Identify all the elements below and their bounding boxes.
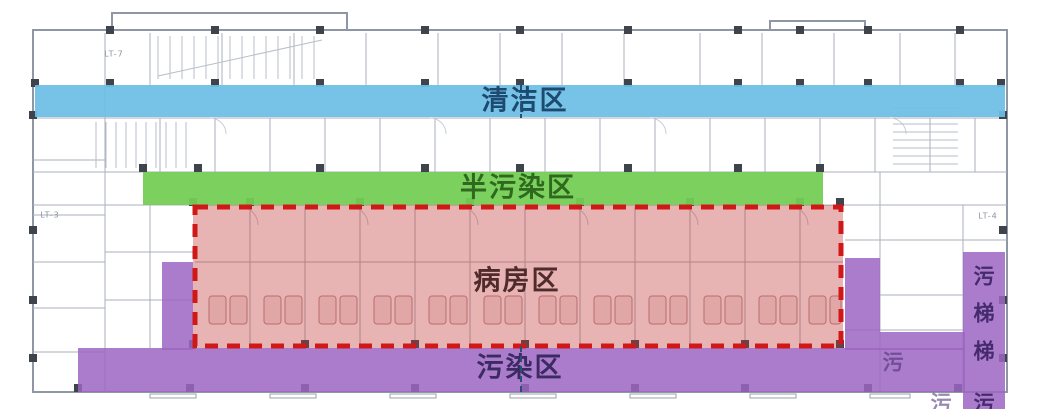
dirty-elevator-char-partial: 污 bbox=[883, 353, 904, 374]
dirty-elevator-char-partial: 污 bbox=[931, 394, 952, 409]
floor-plan-canvas: 清洁区 半污染区 病房区 污染区 污梯梯污污污 LT-7 LT-3 LT-4 bbox=[0, 0, 1044, 409]
polluted-zone-right-arm bbox=[845, 258, 880, 350]
clean-zone-label: 清洁区 bbox=[482, 88, 569, 115]
ward-zone-label: 病房区 bbox=[474, 268, 561, 295]
dirty-elevator-char: 污 bbox=[974, 267, 995, 288]
elevator-id-label: LT-4 bbox=[978, 212, 997, 221]
polluted-zone-right-block bbox=[880, 332, 965, 350]
polluted-zone-left-arm bbox=[162, 262, 193, 350]
dirty-elevator-char: 梯 bbox=[974, 304, 995, 325]
elevator-id-label: LT-3 bbox=[40, 211, 59, 220]
dirty-elevator-char: 污 bbox=[974, 394, 995, 409]
dirty-elevator-char: 梯 bbox=[974, 342, 995, 363]
stair-id-label: LT-7 bbox=[104, 50, 123, 59]
polluted-zone-label: 污染区 bbox=[477, 355, 564, 382]
semi-polluted-zone-label: 半污染区 bbox=[460, 175, 576, 202]
